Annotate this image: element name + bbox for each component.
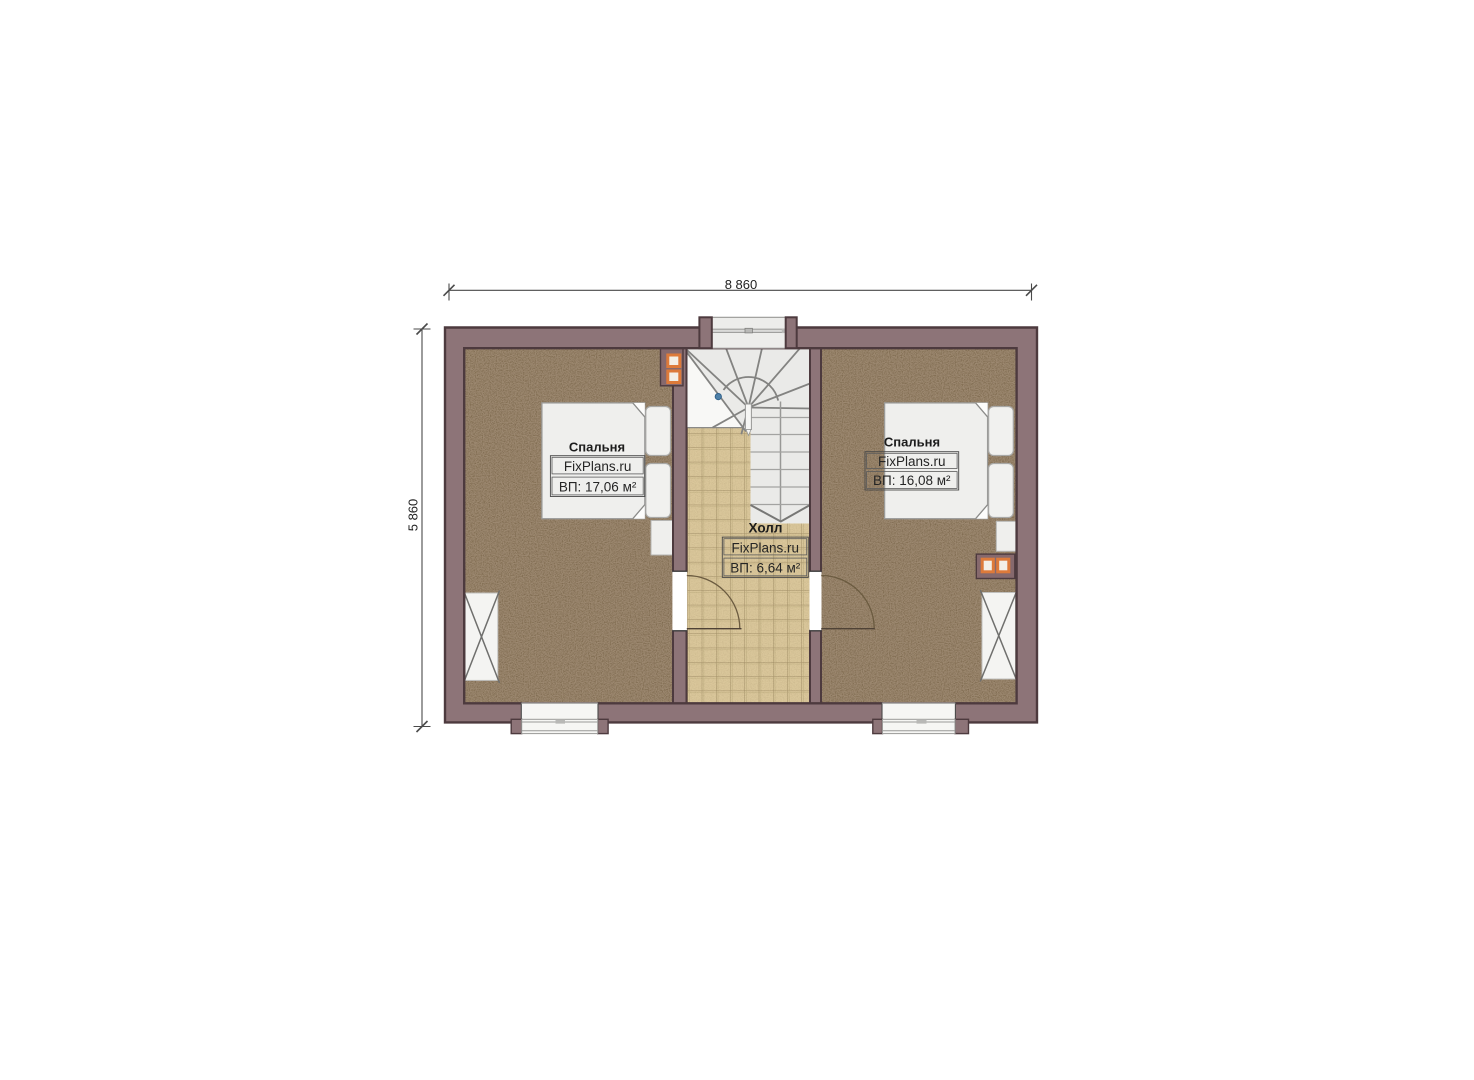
svg-text:Холл: Холл [749, 521, 783, 536]
svg-text:5 860: 5 860 [406, 499, 421, 532]
svg-text:ВП: 17,06 м²: ВП: 17,06 м² [559, 479, 637, 494]
svg-text:FixPlans.ru: FixPlans.ru [732, 541, 800, 556]
svg-text:FixPlans.ru: FixPlans.ru [878, 454, 946, 469]
svg-text:ВП: 6,64 м²: ВП: 6,64 м² [730, 560, 801, 575]
svg-text:ВП: 16,08 м²: ВП: 16,08 м² [873, 473, 951, 488]
svg-text:8 860: 8 860 [725, 277, 758, 292]
svg-text:FixPlans.ru: FixPlans.ru [564, 459, 632, 474]
svg-text:Спальня: Спальня [569, 440, 625, 455]
svg-text:Спальня: Спальня [884, 435, 940, 450]
